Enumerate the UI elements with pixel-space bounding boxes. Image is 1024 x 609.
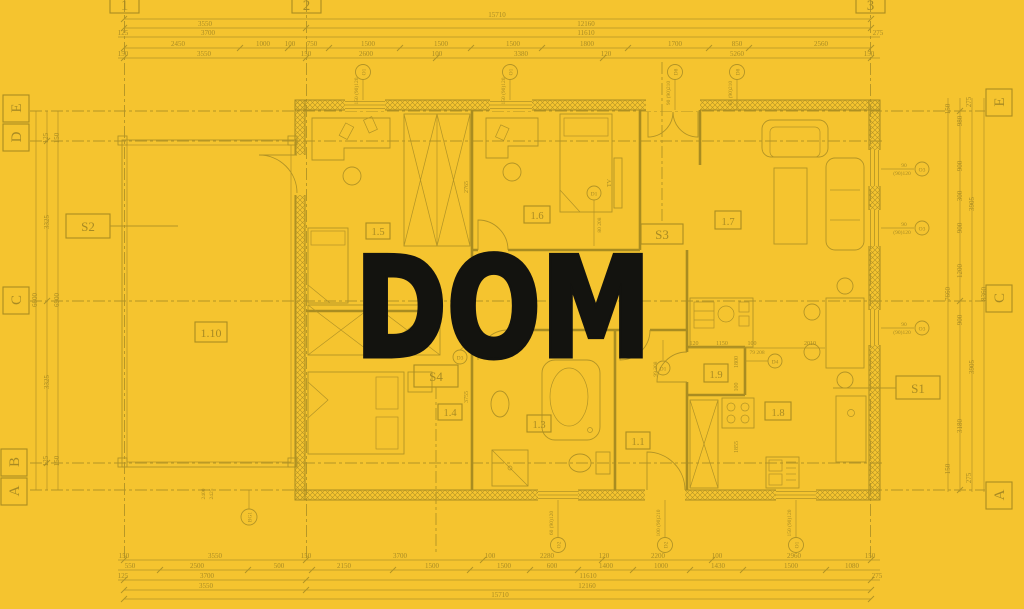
room-label: 1.9 xyxy=(709,370,722,381)
room-label: 1.7 xyxy=(721,217,734,228)
room-label: 1.10 xyxy=(201,326,222,340)
dim-label: 2500 xyxy=(190,562,205,570)
dim-label: 1500 xyxy=(361,40,376,48)
dim-label: 275 xyxy=(965,96,973,107)
dim-label: 150 xyxy=(864,50,875,58)
dim-label: 100 xyxy=(485,552,496,560)
opening-note: 85 (90)210 xyxy=(727,81,734,106)
dim-label: 900 xyxy=(956,314,964,325)
dim-label: 1430 xyxy=(711,562,726,570)
dim-label: 2765 xyxy=(464,181,470,193)
dim-label: 6900 xyxy=(53,293,61,308)
room-label: 1.6 xyxy=(530,211,543,222)
window-tag: O3 xyxy=(919,327,926,333)
dim-label: 15710 xyxy=(491,591,509,599)
window-tag: O2 xyxy=(557,541,563,548)
dim-label: 150 xyxy=(865,552,876,560)
dim-label: 1080 xyxy=(845,562,860,570)
dim-label: 5260 xyxy=(730,50,745,58)
opening-note: (90)120 xyxy=(893,229,911,236)
opening-note: 100 (90)210 xyxy=(655,509,662,536)
dim-label: 2425 xyxy=(209,488,215,499)
section-label-s3: S3 xyxy=(655,227,669,242)
dim-label: 3380 xyxy=(514,50,529,58)
dim-label: 1500 xyxy=(784,562,799,570)
dim-label: 1000 xyxy=(654,562,669,570)
opening-note: 90 xyxy=(901,322,907,328)
dim-label: 1500 xyxy=(497,562,512,570)
dim-label: 3550 xyxy=(197,50,212,58)
dim-label: 1150 xyxy=(716,341,728,347)
floor-plan-drawing: 1 2 3 E D C B A E C A xyxy=(0,0,1024,609)
door-tag: D4 xyxy=(772,360,779,366)
dim-label: 12160 xyxy=(577,20,595,28)
dim-label: 3550 xyxy=(208,552,223,560)
blueprint-hero: 1 2 3 E D C B A E C A xyxy=(0,0,1024,609)
dim-label: 6600 xyxy=(31,293,39,308)
dim-label: 1800 xyxy=(580,40,595,48)
dim-label: 150 xyxy=(119,552,130,560)
dim-label: 1700 xyxy=(668,40,683,48)
dim-label: 150 xyxy=(944,103,952,114)
room-label: 1.8 xyxy=(771,408,784,419)
dim-label: 1855 xyxy=(734,441,740,453)
dim-label: 120 xyxy=(599,552,610,560)
dim-label: 125 xyxy=(118,29,129,37)
dim-label: 2450 xyxy=(171,40,186,48)
dim-label: 1800 xyxy=(734,356,740,368)
dim-label: 3700 xyxy=(201,29,216,37)
dim-label: 3905 xyxy=(968,197,976,212)
opening-note: (90)120 xyxy=(893,329,911,336)
dim-label: 120 xyxy=(601,50,612,58)
window-tag: O1 xyxy=(362,68,368,75)
utility-tag: BG1 xyxy=(248,512,254,523)
dim-label: 150 xyxy=(301,50,312,58)
grid-row-e-left: E xyxy=(9,103,25,112)
dim-label: 100 xyxy=(748,341,757,347)
dim-label: 150 xyxy=(301,552,312,560)
grid-col-1: 1 xyxy=(121,0,129,14)
window-tag: O3 xyxy=(919,168,926,174)
dim-label: 1500 xyxy=(434,40,449,48)
dim-label: 1500 xyxy=(425,562,440,570)
dim-label: 125 xyxy=(118,572,129,580)
dim-label: 980 xyxy=(956,115,964,126)
section-label-s1: S1 xyxy=(911,381,925,396)
dim-label: 3325 xyxy=(43,215,51,230)
grid-row-c-left: C xyxy=(9,295,25,305)
dim-label: 3550 xyxy=(199,582,214,590)
room-label: 1.1 xyxy=(631,437,644,448)
dim-label: 2200 xyxy=(651,552,666,560)
dim-label: 11610 xyxy=(577,29,595,37)
dim-label: 3700 xyxy=(200,572,215,580)
dim-label: 2280 xyxy=(540,552,555,560)
dim-label: 275 xyxy=(872,572,883,580)
opening-note: 90 xyxy=(901,222,907,228)
window-tag: O1 xyxy=(509,68,515,75)
door-tag: D8 xyxy=(674,68,680,75)
opening-note: 90 (90)210 xyxy=(665,81,672,106)
grid-col-3: 3 xyxy=(867,0,875,14)
dim-label: 2010 xyxy=(804,341,816,347)
section-label-s2: S2 xyxy=(81,219,95,234)
room-label: 1.3 xyxy=(532,420,545,431)
dim-label: 150 xyxy=(118,50,129,58)
dim-label: 100 xyxy=(712,552,723,560)
door-tag: D8 xyxy=(736,68,742,75)
dim-label: 1500 xyxy=(506,40,521,48)
dim-label: 7660 xyxy=(944,287,952,302)
dim-label: 15710 xyxy=(488,11,506,19)
dim-label: 99 208 xyxy=(653,361,659,376)
opening-note: 150 (90)120 xyxy=(500,77,507,104)
dim-label: 12160 xyxy=(578,582,596,590)
tv-label: TV xyxy=(607,178,613,187)
dim-label: 8360 xyxy=(980,287,988,302)
room-label: 1.4 xyxy=(443,408,457,419)
dim-label: 2400 xyxy=(201,488,207,499)
dim-label: 3905 xyxy=(968,360,976,375)
grid-row-a-right: A xyxy=(992,489,1008,500)
dim-label: 120 xyxy=(690,341,699,347)
dim-label: 2560 xyxy=(814,40,829,48)
dim-label: 1200 xyxy=(956,264,964,279)
dim-label: 1400 xyxy=(599,562,614,570)
dim-label: 150 xyxy=(53,455,61,466)
dim-label: 150 xyxy=(53,132,61,143)
dim-label: 500 xyxy=(274,562,285,570)
dim-label: 2960 xyxy=(787,552,802,560)
grid-row-d-left: D xyxy=(9,131,25,142)
door-tag: D1 xyxy=(660,367,667,373)
dim-label: 1000 xyxy=(256,40,271,48)
dim-label: 100 xyxy=(734,383,740,392)
dim-label: 2600 xyxy=(359,50,374,58)
opening-note: 90 xyxy=(901,163,907,169)
dim-label: 275 xyxy=(965,472,973,483)
opening-note: 150 (90)120 xyxy=(353,77,360,104)
dim-label: 900 xyxy=(956,222,964,233)
dim-label: 3180 xyxy=(956,419,964,434)
dim-label: 550 xyxy=(125,562,136,570)
door-tag: D1 xyxy=(591,192,598,198)
dim-label: 125 xyxy=(42,132,50,143)
door-tag: D2 xyxy=(664,541,670,548)
grid-row-e-right: E xyxy=(992,97,1008,106)
opening-note: 60 (90)120 xyxy=(548,511,555,536)
dim-label: 3550 xyxy=(198,20,213,28)
dim-label: 850 xyxy=(732,40,743,48)
dim-label: 3755 xyxy=(464,391,470,403)
dim-label: 100 xyxy=(285,40,296,48)
dim-label: 600 xyxy=(547,562,558,570)
dim-label: 11610 xyxy=(579,572,597,580)
grid-row-c-right: C xyxy=(992,293,1008,303)
grid-col-2: 2 xyxy=(303,0,311,14)
opening-note: 150 (90)120 xyxy=(786,509,793,536)
dim-label: 750 xyxy=(307,40,318,48)
dim-label: 125 xyxy=(42,455,50,466)
grid-row-a-left: A xyxy=(7,485,23,496)
dim-label: 100 xyxy=(432,50,443,58)
dim-label: 2150 xyxy=(337,562,352,570)
dim-label: 79 208 xyxy=(749,350,764,356)
dim-label: 275 xyxy=(873,29,884,37)
dim-label: 150 xyxy=(944,463,952,474)
hero-title: DOM xyxy=(355,228,651,389)
dim-label: 3325 xyxy=(43,375,51,390)
dim-label: 900 xyxy=(956,160,964,171)
grid-row-b-left: B xyxy=(7,457,23,467)
window-tag: O1 xyxy=(795,541,801,548)
dim-label: 300 xyxy=(956,190,964,201)
window-tag: O3 xyxy=(919,227,926,233)
dim-label: 3700 xyxy=(393,552,408,560)
opening-note: (90)120 xyxy=(893,170,911,177)
